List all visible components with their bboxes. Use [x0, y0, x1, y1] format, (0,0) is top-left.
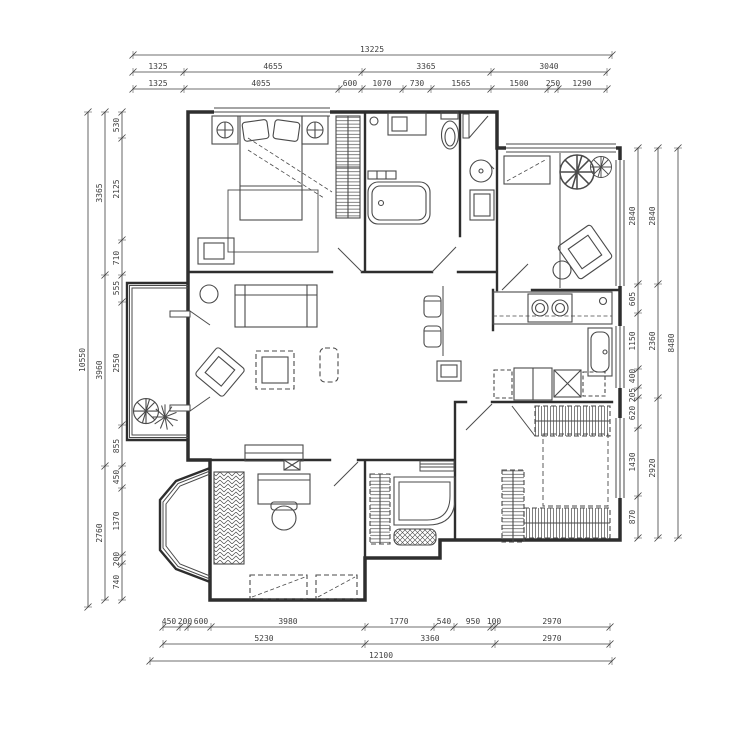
round-table-icon — [200, 285, 218, 303]
dim-label: 1500 — [509, 79, 528, 88]
vanity-sink-icon — [370, 113, 426, 135]
dim-label: 400 — [628, 369, 637, 384]
dim-label: 1150 — [628, 331, 637, 350]
dim-label: 3360 — [420, 634, 439, 643]
dim-label: 600 — [194, 617, 209, 626]
dim-label: 12100 — [369, 651, 393, 660]
wardrobe-icon — [502, 470, 524, 542]
window-seat-middle-room — [420, 461, 454, 471]
dim-label: 3980 — [278, 617, 297, 626]
door-bathroom — [432, 247, 456, 272]
dim-label: 530 — [112, 118, 121, 133]
study-furniture — [214, 472, 357, 599]
windows — [214, 107, 625, 498]
plant-icon — [560, 155, 594, 189]
dim-label: 2550 — [112, 353, 121, 372]
dim-label: 4655 — [263, 62, 282, 71]
plant-icon — [591, 157, 612, 178]
hall-cabinet-icon — [470, 190, 494, 220]
side-table-icon — [553, 261, 571, 279]
toilet-icon — [441, 112, 459, 149]
bathtub-icon — [368, 182, 430, 224]
door-bedroom2 — [502, 264, 528, 290]
dim-label: 2760 — [95, 523, 104, 542]
desk-chair-icon — [271, 502, 297, 530]
dim-label: 10550 — [78, 348, 87, 372]
bed-icon — [543, 434, 608, 506]
dim-label: 200 — [112, 552, 121, 567]
armchair-icon — [195, 347, 246, 398]
dim-label: 1325 — [148, 62, 167, 71]
dresser-icon — [198, 238, 234, 264]
sofa-icon — [235, 285, 317, 327]
bath-mat-icon — [368, 171, 396, 179]
dim-label: 3365 — [416, 62, 435, 71]
floor-plan-drawing: 13225 1325 4655 3365 3040 1325 4055 600 … — [0, 0, 740, 740]
dining-table-icon — [437, 361, 461, 381]
rug-icon — [228, 190, 318, 252]
dim-label: 555 — [112, 281, 121, 296]
floor-plan-canvas: 13225 1325 4655 3365 3040 1325 4055 600 … — [0, 0, 740, 740]
dim-label: 13225 — [360, 45, 384, 54]
dim-label: 855 — [112, 439, 121, 454]
wardrobe-icon — [336, 116, 360, 218]
dim-label: 1430 — [628, 452, 637, 471]
cabinet-icon — [250, 575, 307, 599]
dim-label: 3365 — [95, 183, 104, 202]
dim-label: 600 — [343, 79, 358, 88]
wardrobe-icon — [524, 508, 610, 538]
dim-chain-bottom: 450 200 600 3980 1770 540 950 100 2970 5… — [147, 617, 616, 665]
door-study — [334, 462, 358, 486]
kitchen-sink-icon — [588, 328, 612, 376]
dim-label: 3960 — [95, 360, 104, 379]
washing-machine-icon — [470, 160, 494, 182]
kitchen-fixtures — [493, 292, 612, 400]
living-room-furniture — [195, 285, 338, 470]
dim-label: 740 — [112, 575, 121, 590]
dining-furniture — [424, 286, 461, 381]
hood-icon — [600, 298, 607, 305]
cushion-icon — [394, 529, 436, 545]
nightstand-icon — [212, 116, 238, 144]
dim-label: 620 — [628, 406, 637, 421]
dim-label: 950 — [466, 617, 481, 626]
stove-icon — [528, 294, 572, 322]
wardrobe-icon — [370, 474, 390, 544]
cabinet-icon — [316, 575, 357, 599]
middle-room-furniture — [370, 474, 455, 545]
furniture — [134, 112, 613, 599]
nightstand-icon — [302, 116, 328, 144]
dim-label: 450 — [112, 470, 121, 485]
fridge-icon — [514, 368, 552, 400]
entry-door — [463, 114, 488, 138]
door-balcony-top — [170, 311, 210, 325]
dim-label: 100 — [487, 617, 502, 626]
dim-label: 2970 — [542, 617, 561, 626]
bedroom2-furniture — [504, 155, 613, 280]
dim-chain-right: 8480 2840 2360 2920 2840 605 1150 400 20… — [628, 145, 682, 542]
dim-label: 200 — [178, 617, 193, 626]
dining-chair-icon — [424, 326, 441, 347]
dim-label: 1325 — [148, 79, 167, 88]
stool-icon — [320, 348, 338, 382]
bedroom3-furniture — [502, 406, 610, 542]
window-bedroom3-right — [615, 418, 625, 498]
door-balcony-bottom — [170, 397, 210, 411]
wardrobe-icon — [512, 406, 610, 436]
dim-label: 2125 — [112, 179, 121, 198]
dim-label: 710 — [112, 251, 121, 266]
bathroom-fixtures — [368, 112, 494, 224]
dim-label: 540 — [437, 617, 452, 626]
dim-label: 730 — [410, 79, 425, 88]
dim-label: 205 — [628, 388, 637, 403]
dim-label: 4055 — [251, 79, 270, 88]
dim-chain-left: 10550 3365 3960 2760 530 2125 710 555 25… — [78, 109, 126, 611]
dim-label: 1770 — [389, 617, 408, 626]
dining-chair-icon — [424, 296, 441, 317]
dim-label: 2840 — [648, 206, 657, 225]
bed-platform-icon — [394, 477, 455, 525]
dim-label: 5230 — [254, 634, 273, 643]
dim-label: 1370 — [112, 511, 121, 530]
dim-label: 250 — [546, 79, 561, 88]
desk-icon — [258, 474, 310, 504]
bay-window — [160, 468, 210, 582]
window-bedroom2-right — [615, 160, 625, 286]
dim-label: 2920 — [648, 458, 657, 477]
dim-label: 2970 — [542, 634, 561, 643]
dim-label: 3040 — [539, 62, 558, 71]
window-kitchen-right — [615, 326, 625, 388]
dim-label: 1565 — [451, 79, 470, 88]
dim-label: 605 — [628, 292, 637, 307]
door-bedroom3 — [466, 404, 492, 430]
door-master-bedroom — [338, 248, 362, 272]
window-bedroom2-top — [506, 143, 616, 153]
herringbone-wardrobe-icon — [214, 472, 244, 564]
dim-label: 2840 — [628, 206, 637, 225]
dim-label: 8480 — [667, 333, 676, 352]
coffee-table-icon — [256, 351, 294, 389]
dim-label: 1290 — [572, 79, 591, 88]
dim-label: 1070 — [372, 79, 391, 88]
dim-chain-top: 13225 1325 4655 3365 3040 1325 4055 600 … — [130, 45, 616, 93]
master-bedroom-furniture — [198, 116, 360, 264]
lounge-chair-icon — [557, 224, 613, 280]
balcony-plants — [134, 399, 178, 430]
cabinet-icon — [504, 156, 550, 184]
dim-label: 870 — [628, 510, 637, 525]
tv-cabinet-icon — [245, 445, 303, 470]
dim-label: 2360 — [648, 331, 657, 350]
dim-label: 450 — [162, 617, 177, 626]
plant-icon — [134, 399, 159, 424]
